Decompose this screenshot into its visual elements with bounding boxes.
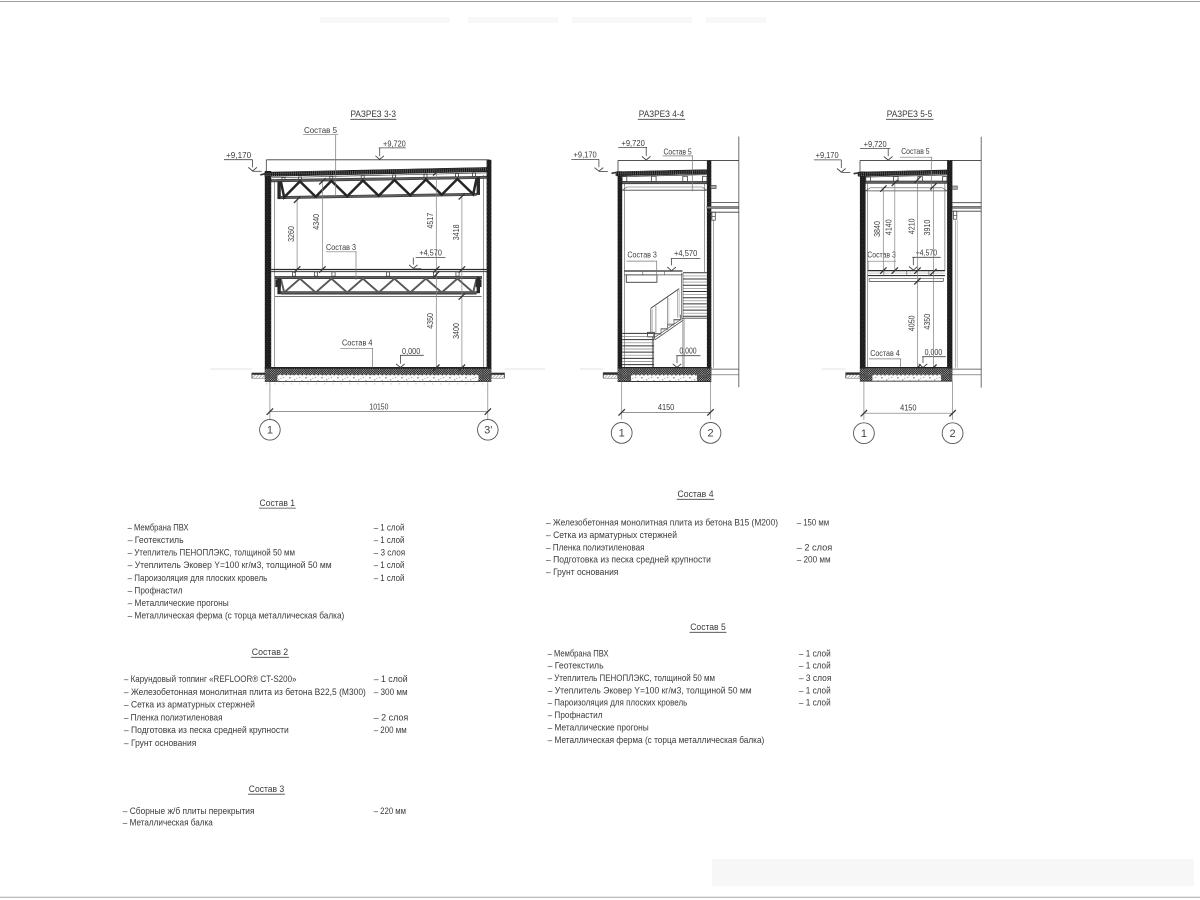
svg-text:– 150 мм: – 150 мм [797, 518, 829, 528]
svg-text:Состав 5: Состав 5 [664, 146, 692, 156]
svg-text:– Утеплитель ПЕНОПЛЭКС, толщин: – Утеплитель ПЕНОПЛЭКС, толщиной 50 мм [128, 548, 295, 558]
svg-text:РАЗРЕЗ 3-3: РАЗРЕЗ 3-3 [350, 109, 396, 120]
svg-text:– Металлические прогоны: – Металлические прогоны [128, 598, 229, 608]
svg-text:– Утеплитель ПЕНОПЛЭКС, толщин: – Утеплитель ПЕНОПЛЭКС, толщиной 50 мм [548, 673, 715, 683]
svg-text:– Железобетонная монолитная п: – Железобетонная монолитная плита из бет… [546, 518, 778, 528]
svg-text:– Геотекстиль: – Геотекстиль [548, 661, 604, 671]
svg-text:– Металлическая ферма (с торца: – Металлическая ферма (с торца металличе… [128, 610, 345, 620]
svg-text:+9,720: +9,720 [864, 139, 887, 149]
svg-text:Состав 5: Состав 5 [901, 146, 930, 156]
svg-text:– 1 слой: – 1 слой [374, 560, 405, 570]
svg-text:– 200 мм: – 200 мм [797, 555, 831, 565]
svg-text:+9,170: +9,170 [574, 149, 597, 159]
svg-text:4210: 4210 [907, 218, 916, 234]
svg-text:0,000: 0,000 [402, 346, 420, 356]
svg-text:Состав 3: Состав 3 [627, 250, 657, 260]
svg-text:Состав 1: Состав 1 [260, 498, 296, 508]
svg-text:4150: 4150 [658, 402, 675, 412]
svg-text:– 3 слоя: – 3 слоя [799, 673, 832, 683]
svg-text:0,000: 0,000 [679, 345, 696, 355]
svg-text:– Мембрана ПВХ: – Мембрана ПВХ [548, 648, 609, 658]
svg-text:4517: 4517 [426, 212, 435, 228]
svg-text:– Пленка полиэтиленовая: – Пленка полиэтиленовая [124, 713, 223, 723]
svg-text:– Геотекстиль: – Геотекстиль [128, 535, 184, 545]
svg-text:– Железобетонная монолитная п: – Железобетонная монолитная плита из бет… [124, 687, 366, 697]
svg-text:1: 1 [861, 428, 867, 440]
svg-text:– Профнастил: – Профнастил [128, 585, 183, 595]
svg-text:+9,170: +9,170 [816, 150, 839, 160]
svg-text:– Утеплитель Эковер Y=100 кг/м: – Утеплитель Эковер Y=100 кг/м3, толщино… [548, 685, 752, 695]
svg-text:+9,720: +9,720 [621, 138, 645, 148]
svg-text:– 3 слоя: – 3 слоя [374, 548, 406, 558]
svg-text:10150: 10150 [369, 402, 388, 412]
svg-text:2: 2 [707, 428, 713, 440]
svg-text:– 220 мм: – 220 мм [374, 806, 406, 816]
svg-text:3910: 3910 [923, 219, 932, 235]
svg-text:– Грунт основания: – Грунт основания [546, 567, 619, 577]
svg-text:4050: 4050 [907, 315, 916, 331]
svg-text:– 1 слой: – 1 слой [374, 573, 405, 583]
svg-text:2: 2 [950, 428, 956, 440]
svg-text:– Металлическая ферма (с торца: – Металлическая ферма (с торца металличе… [548, 735, 765, 745]
svg-text:– Металлическая балка: – Металлическая балка [123, 818, 213, 828]
svg-text:1: 1 [619, 428, 625, 440]
svg-text:– Сетка из арматурных стержней: – Сетка из арматурных стержней [124, 700, 255, 710]
svg-text:– 1 слой: – 1 слой [374, 674, 408, 684]
svg-text:Состав 3: Состав 3 [326, 242, 356, 252]
svg-text:4350: 4350 [426, 313, 435, 329]
svg-text:3418: 3418 [452, 224, 461, 240]
svg-text:РАЗРЕЗ 5-5: РАЗРЕЗ 5-5 [887, 109, 933, 120]
svg-text:Состав 4: Состав 4 [870, 348, 900, 358]
svg-text:– Сетка из арматурных стержней: – Сетка из арматурных стержней [546, 530, 677, 540]
svg-text:+4,570: +4,570 [419, 248, 442, 258]
svg-text:3260: 3260 [287, 226, 296, 242]
svg-text:– 1 слой: – 1 слой [374, 523, 405, 533]
svg-text:+9,170: +9,170 [226, 150, 251, 160]
svg-text:– Профнастил: – Профнастил [548, 710, 603, 720]
svg-text:– 1 слой: – 1 слой [799, 698, 831, 708]
svg-text:Состав 5: Состав 5 [690, 622, 726, 632]
svg-text:– 1 слой: – 1 слой [374, 535, 405, 545]
svg-text:– Сборные ж/б плиты перекрытия: – Сборные ж/б плиты перекрытия [123, 806, 255, 816]
svg-text:– Мембрана ПВХ: – Мембрана ПВХ [128, 523, 189, 533]
svg-text:– 300 мм: – 300 мм [374, 687, 408, 697]
svg-text:4350: 4350 [923, 313, 932, 329]
svg-text:Состав 5: Состав 5 [304, 125, 337, 135]
svg-text:– Металлические прогоны: – Металлические прогоны [548, 722, 649, 732]
svg-text:Состав 4: Состав 4 [677, 489, 713, 499]
svg-text:3': 3' [484, 425, 492, 437]
svg-text:– Подготовка из песка средней: – Подготовка из песка средней крупности [546, 555, 711, 565]
svg-text:– 1 слой: – 1 слой [799, 661, 831, 671]
svg-text:1: 1 [267, 425, 273, 437]
svg-text:– 2 слоя: – 2 слоя [797, 542, 833, 552]
svg-text:Состав 3: Состав 3 [867, 249, 896, 259]
svg-text:4150: 4150 [900, 402, 917, 412]
svg-text:+9,720: +9,720 [383, 138, 406, 148]
svg-text:– Карундовый топпинг «REFLOOR®: – Карундовый топпинг «REFLOOR® CT-S200» [124, 674, 297, 684]
svg-text:– Утеплитель Эковер Y=100 кг/м: – Утеплитель Эковер Y=100 кг/м3, толщино… [128, 560, 332, 570]
svg-text:Состав 3: Состав 3 [249, 784, 284, 794]
svg-text:– 2 слоя: – 2 слоя [374, 713, 409, 723]
svg-text:+4,570: +4,570 [916, 247, 938, 257]
svg-text:– 200 мм: – 200 мм [374, 725, 407, 735]
svg-text:– Пленка полиэтиленовая: – Пленка полиэтиленовая [546, 542, 645, 552]
svg-text:+4,570: +4,570 [674, 248, 697, 258]
svg-text:3400: 3400 [452, 323, 461, 339]
svg-text:– Пароизоляция для плоских кро: – Пароизоляция для плоских кровель [548, 698, 688, 708]
svg-text:– Грунт основания: – Грунт основания [124, 738, 197, 748]
svg-text:– Пароизоляция для плоских кро: – Пароизоляция для плоских кровель [128, 573, 268, 583]
svg-text:– Подготовка из песка средней: – Подготовка из песка средней крупности [124, 725, 289, 735]
svg-text:4340: 4340 [312, 213, 321, 229]
svg-text:– 1 слой: – 1 слой [799, 648, 831, 658]
svg-text:– 1 слой: – 1 слой [799, 685, 831, 695]
svg-text:4140: 4140 [885, 219, 894, 235]
svg-text:РАЗРЕЗ 4-4: РАЗРЕЗ 4-4 [639, 109, 685, 120]
svg-text:Состав 4: Состав 4 [342, 338, 373, 348]
svg-text:Состав 2: Состав 2 [252, 647, 288, 657]
svg-text:3840: 3840 [873, 221, 882, 237]
